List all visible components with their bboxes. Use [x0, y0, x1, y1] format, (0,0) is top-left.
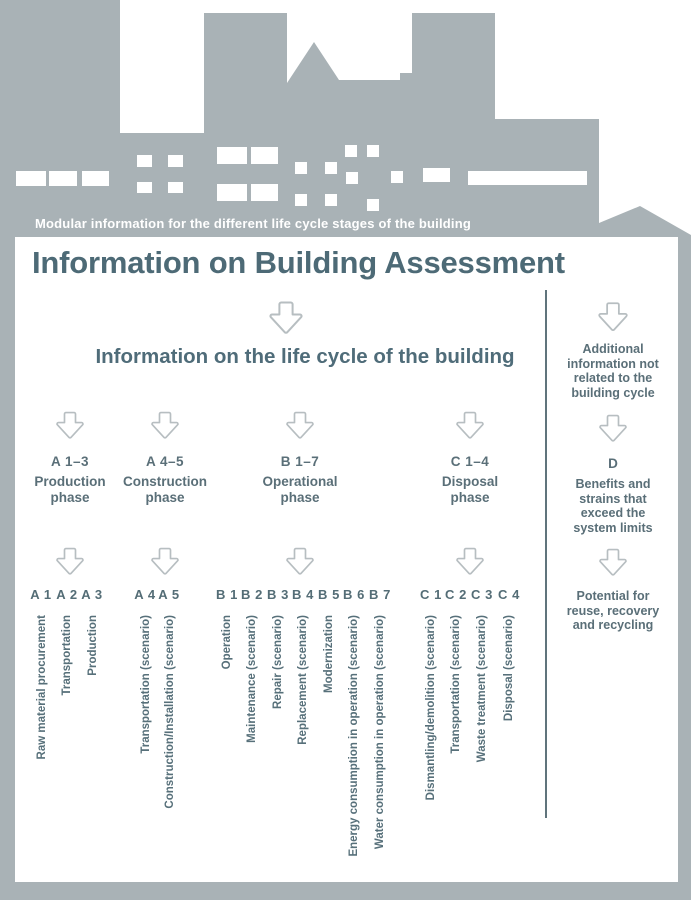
- sidebar-note-benefits: Benefits and strains that exceed the sys…: [553, 477, 673, 535]
- building-banner: Modular information for the different li…: [0, 0, 691, 237]
- phase-name: Operational phase: [242, 474, 358, 505]
- module-label-b4: Replacement (scenario): [296, 615, 310, 875]
- phase-name: Disposal phase: [412, 474, 528, 505]
- module-label-a4: Transportation (scenario): [139, 615, 153, 875]
- module-label-a2: Transportation: [60, 615, 74, 875]
- phase-operational: B 1–7 Operational phase: [242, 454, 358, 505]
- module-label-c3: Waste treatment (scenario): [475, 615, 489, 875]
- down-arrow-icon: [455, 546, 485, 577]
- down-arrow-icon: [455, 410, 485, 441]
- down-arrow-icon: [598, 413, 628, 444]
- content-area: Information on Building Assessment Infor…: [15, 237, 678, 882]
- phase-code: B 1–7: [242, 454, 358, 469]
- phase-code: A 4–5: [107, 454, 223, 469]
- page-title: Information on Building Assessment: [32, 245, 565, 281]
- module-label-a5: Construction/Installation (scenario): [163, 615, 177, 875]
- building-skyline-graphic: [0, 0, 691, 237]
- down-arrow-icon: [285, 546, 315, 577]
- module-label-b6: Energy consumption in operation (scenari…: [347, 615, 361, 875]
- module-label-c2: Transportation (scenario): [449, 615, 463, 875]
- sidebar-d-code: D: [553, 456, 673, 471]
- module-label-b3: Repair (scenario): [271, 615, 285, 875]
- module-code-b7: B 7: [358, 587, 402, 602]
- banner-caption: Modular information for the different li…: [35, 216, 471, 231]
- phase-construction: A 4–5 Construction phase: [107, 454, 223, 505]
- module-label-b7: Water consumption in operation (scenario…: [373, 615, 387, 875]
- module-code-a3: A 3: [70, 587, 114, 602]
- sidebar-note-additional: Additional information not related to th…: [553, 342, 673, 400]
- phase-disposal: C 1–4 Disposal phase: [412, 454, 528, 505]
- infographic-page: Modular information for the different li…: [0, 0, 691, 900]
- down-arrow-icon: [268, 300, 304, 336]
- module-label-a3: Production: [86, 615, 100, 875]
- down-arrow-icon: [285, 410, 315, 441]
- module-label-c1: Dismantling/demolition (scenario): [424, 615, 438, 875]
- module-label-c4: Disposal (scenario): [502, 615, 516, 875]
- module-label-b1: Operation: [220, 615, 234, 875]
- module-label-a1: Raw material procurement: [35, 615, 49, 875]
- module-code-a5: A 5: [147, 587, 191, 602]
- module-label-b2: Maintenance (scenario): [245, 615, 259, 875]
- section-divider: [545, 290, 547, 818]
- sidebar-note-potential: Potential for reuse, recovery and recycl…: [553, 589, 673, 633]
- down-arrow-icon: [598, 547, 628, 578]
- down-arrow-icon: [55, 410, 85, 441]
- down-arrow-icon: [150, 546, 180, 577]
- phase-name: Construction phase: [107, 474, 223, 505]
- phase-code: C 1–4: [412, 454, 528, 469]
- down-arrow-icon: [55, 546, 85, 577]
- module-label-b5: Modernization: [322, 615, 336, 875]
- down-arrow-icon: [597, 301, 629, 333]
- module-code-c4: C 4: [487, 587, 531, 602]
- down-arrow-icon: [150, 410, 180, 441]
- lifecycle-heading: Information on the life cycle of the bui…: [55, 345, 555, 369]
